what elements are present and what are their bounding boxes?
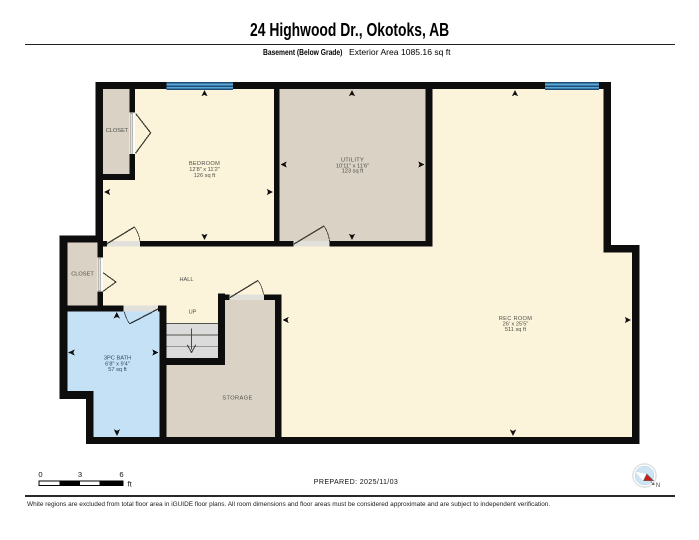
svg-text:6: 6 bbox=[119, 470, 123, 479]
svg-text:0: 0 bbox=[38, 470, 42, 479]
svg-text:123 sq ft: 123 sq ft bbox=[342, 169, 364, 175]
svg-text:N: N bbox=[656, 482, 660, 489]
svg-text:ft: ft bbox=[128, 479, 133, 488]
svg-text:STORAGE: STORAGE bbox=[222, 396, 252, 402]
svg-text:57 sq ft: 57 sq ft bbox=[108, 367, 127, 373]
svg-text:511 sq ft: 511 sq ft bbox=[505, 327, 527, 333]
svg-text:HALL: HALL bbox=[179, 277, 193, 283]
svg-text:UP: UP bbox=[189, 310, 197, 316]
svg-text:3: 3 bbox=[78, 470, 82, 479]
svg-text:CLOSET: CLOSET bbox=[106, 128, 129, 134]
svg-text:CLOSET: CLOSET bbox=[71, 272, 94, 278]
svg-text:126 sq ft: 126 sq ft bbox=[194, 173, 216, 179]
